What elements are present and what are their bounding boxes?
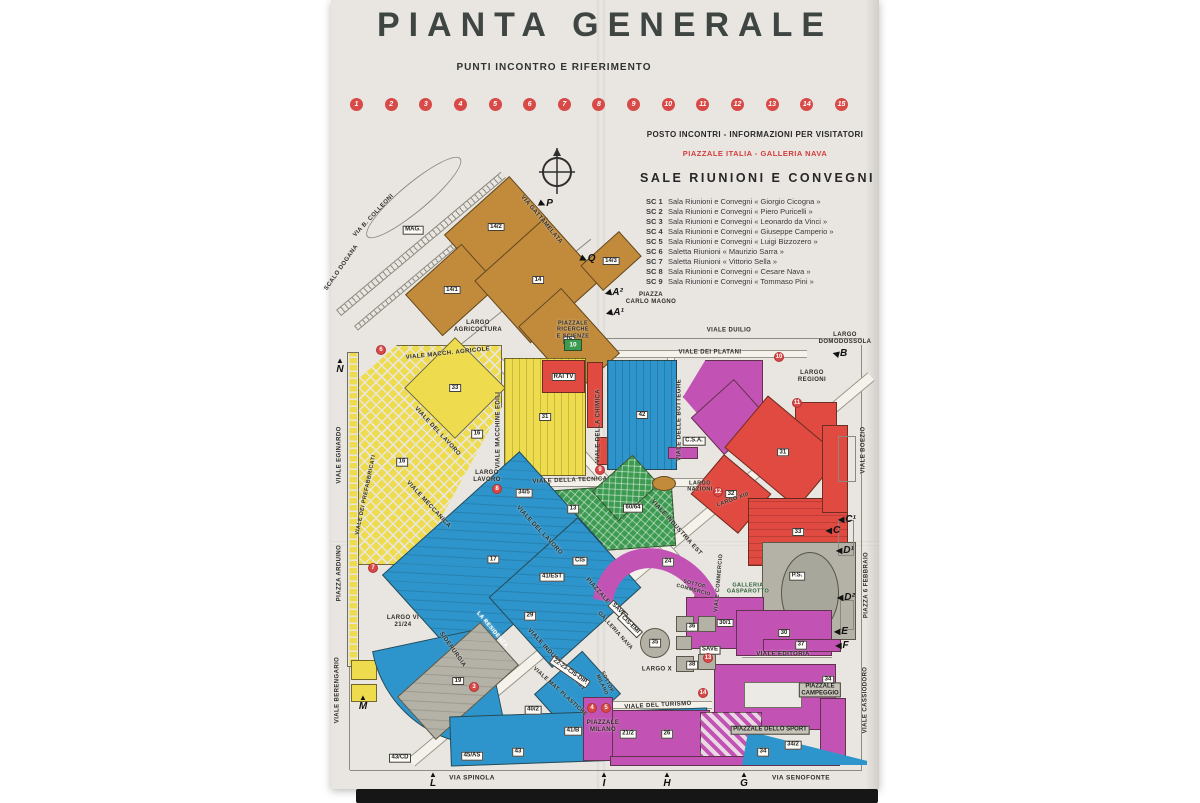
- pavilion-number: 19: [452, 677, 464, 685]
- map-label-37: 37: [795, 641, 807, 650]
- gate-arrow-icon: ◀: [836, 547, 842, 555]
- map-label-34/2: 34/2: [785, 741, 802, 750]
- gate-D¹: ◀D¹: [836, 546, 854, 556]
- map-label-c.s.a.: C.S.A.: [683, 437, 706, 446]
- street-label: PIAZZA 6 FEBBRAIO: [864, 552, 871, 618]
- street-label: VIA SENOFONTE: [772, 774, 830, 781]
- gate-letter: A¹: [613, 308, 624, 318]
- map-label-41/b: 41/B: [564, 727, 582, 736]
- gate-letter: P: [546, 199, 553, 209]
- gate-letter: I: [603, 779, 606, 789]
- pavilion-number: 14/2: [488, 223, 505, 231]
- map-label-cis: CIS: [572, 557, 587, 566]
- pavilion: [676, 636, 692, 650]
- meeting-point-dot-13: 13: [703, 653, 713, 663]
- pavilion-number: 14: [532, 276, 544, 284]
- meeting-point-dot-5: 5: [601, 703, 611, 713]
- gate-arrow-icon: ◀: [837, 594, 843, 602]
- gate-A¹: ◀A¹: [606, 308, 624, 318]
- map-label-16: 16: [396, 458, 408, 467]
- street-label: VIALE BOEZIO: [861, 426, 868, 473]
- gate-C¹: ◀C¹: [838, 515, 856, 525]
- street-label: VIA SPINOLA: [449, 774, 495, 781]
- street-label: VIALE DELLA CHIMICA: [596, 389, 603, 463]
- gate-letter: G: [740, 779, 748, 789]
- map-label-p.s.: P.S.: [789, 572, 805, 581]
- gate-arrow-icon: ◀: [604, 288, 612, 297]
- street-label: PIAZZALE RICERCHE E SCIENZE: [557, 321, 590, 340]
- map-label-mag.: MAG.: [403, 226, 424, 235]
- gate-L: ▲L: [429, 771, 437, 789]
- meeting-point-dot-6: 6: [376, 345, 386, 355]
- gate-A²: ◀A²: [605, 288, 623, 298]
- pavilion-number: 30: [778, 629, 790, 637]
- gate-B: ◀B: [833, 349, 847, 359]
- street-label: VIALE DEI PLATANI: [679, 350, 742, 357]
- meeting-point-dot-4: 4: [587, 703, 597, 713]
- pavilion-RAI TV: RAI TV: [542, 360, 585, 393]
- gate-arrow-icon: ◀: [826, 527, 832, 535]
- pavilion-number: 14/1: [444, 286, 461, 294]
- pavilion-number: RAI TV: [551, 373, 576, 381]
- map-label-43/cd: 43/CD: [389, 754, 411, 763]
- gate-arrow-icon: ◀: [832, 349, 840, 358]
- map-label-36: 36: [686, 623, 698, 632]
- gate-H: ▲H: [663, 771, 671, 789]
- compass-icon: [536, 146, 578, 194]
- map-label-13: 13: [567, 505, 579, 514]
- pavilion-number: 42: [636, 411, 648, 419]
- gate-letter: C: [833, 526, 840, 536]
- street-label: GALLERIA GASPAROTTO: [727, 583, 769, 596]
- gate-letter: D¹: [843, 546, 854, 556]
- gate-arrow-icon: ◀: [835, 642, 841, 650]
- street-label: PIAZZA CARLO MAGNO: [626, 292, 676, 306]
- map-label-16: 16: [471, 430, 483, 439]
- gate-P: ▶P: [539, 199, 553, 209]
- street-label: LARGO LAVORO: [473, 470, 501, 484]
- pavilion: [351, 660, 377, 680]
- gate-arrow-icon: ◀: [838, 516, 844, 524]
- pavilion-number: 17: [487, 556, 499, 564]
- pavilion: [652, 476, 676, 491]
- street-label: VIALE MACCHINE EDILI: [496, 392, 503, 469]
- gate-letter: B: [840, 349, 847, 359]
- pavilion-number: 30/1: [717, 619, 734, 627]
- gate-D²: ◀D²: [837, 593, 855, 603]
- gate-N: ▲N: [336, 357, 344, 375]
- map-label-piazzale-campeggio: PIAZZALE CAMPEGGIO: [799, 682, 841, 697]
- street-label: PIAZZA ARDUINO: [337, 545, 344, 602]
- street-label: VIALE EGINARDO: [337, 426, 344, 483]
- street-label: VIALE CASSIODORO: [863, 667, 870, 734]
- pavilion: [347, 352, 359, 667]
- gate-C: ◀C: [826, 526, 840, 536]
- meeting-point-dot-9: 9: [595, 465, 605, 475]
- street-label: VIALE DELLE BOTTEGHE: [677, 379, 684, 461]
- street-label: LARGO VI 21/24: [387, 615, 419, 629]
- gate-letter: H: [663, 779, 670, 789]
- gate-E: ◀E: [834, 627, 848, 637]
- gate-Q: ▶Q: [581, 254, 596, 264]
- map-label-38: 38: [686, 661, 698, 670]
- pavilion: [698, 616, 716, 632]
- gate-arrow-icon: ◀: [834, 628, 840, 636]
- street-label: LARGO DOMODOSSOLA: [819, 332, 872, 346]
- pavilion-number: 10: [568, 342, 578, 349]
- meeting-point-dot-3: 3: [469, 682, 479, 692]
- gate-arrow-icon: ◀: [605, 308, 613, 317]
- fairground-map: 14/214/11414/3153331RAI TV42273132331017…: [0, 0, 1200, 803]
- gate-letter: D²: [844, 593, 855, 603]
- pavilion-42: 42: [607, 360, 677, 470]
- gate-letter: N: [336, 365, 343, 375]
- pavilion-number: 31: [539, 413, 551, 421]
- gate-G: ▲G: [740, 771, 748, 789]
- map-label-35: 35: [649, 639, 661, 648]
- gate-M: ▲M: [359, 694, 367, 712]
- meeting-point-dot-11: 11: [792, 398, 802, 408]
- meeting-point-dot-8: 8: [492, 484, 502, 494]
- map-label-26: 26: [661, 730, 673, 739]
- map-label-60/64: 60/64: [623, 504, 643, 513]
- street-label: VIALE BERENGARIO: [335, 657, 342, 723]
- street-label: LARGO NAZIONI: [687, 481, 712, 494]
- street-label: LARGO X: [642, 667, 672, 674]
- pavilion-number: 14/3: [603, 257, 620, 265]
- pavilion: [838, 436, 856, 482]
- street-label: VIALE EDITORIA: [756, 652, 810, 659]
- map-label-45/as: 45/AS: [461, 752, 483, 761]
- pavilion: [820, 698, 846, 756]
- street-label: LARGO AGRICOLTURA: [454, 320, 502, 334]
- pavilion-10: 10: [564, 339, 582, 351]
- gate-letter: L: [430, 779, 436, 789]
- gate-F: ◀F: [835, 641, 848, 651]
- map-label-41/est: 41/EST: [539, 573, 564, 582]
- gate-letter: F: [843, 641, 849, 651]
- gate-letter: Q: [588, 254, 596, 264]
- meeting-point-dot-14: 14: [698, 688, 708, 698]
- street-label: SCALO DOGANA: [324, 244, 361, 292]
- map-label-34: 34: [757, 748, 769, 757]
- meeting-point-dot-12: 12: [713, 487, 723, 497]
- street-label: LARGO REGIONI: [798, 370, 826, 384]
- gate-letter: A²: [612, 288, 623, 298]
- street-label: VIALE DUILIO: [707, 328, 751, 335]
- gate-letter: M: [359, 702, 367, 712]
- pavilion: [744, 682, 802, 708]
- gate-letter: E: [841, 627, 848, 637]
- map-label-piazzale-dello-sport: PIAZZALE DELLO SPORT: [731, 726, 810, 735]
- pavilion-number: 33: [792, 528, 804, 536]
- map-label-21/2: 21/2: [620, 730, 637, 739]
- scan-edge-strip: [356, 789, 878, 803]
- map-label-34/5: 34/5: [516, 489, 533, 498]
- meeting-point-dot-7: 7: [368, 563, 378, 573]
- street-label: PIAZZALE MILANO: [587, 720, 620, 734]
- scanned-map-page: PIANTA GENERALE PUNTI INCONTRO E RIFERIM…: [0, 0, 1200, 803]
- map-label-43: 43: [512, 748, 524, 757]
- meeting-point-dot-10: 10: [774, 352, 784, 362]
- gate-I: ▲I: [600, 771, 608, 789]
- pavilion-number: 33: [449, 384, 461, 392]
- pavilion-number: 31: [777, 448, 789, 456]
- map-label-24: 24: [662, 558, 674, 567]
- gate-letter: C¹: [845, 515, 856, 525]
- map-label-29: 29: [524, 612, 536, 621]
- map-label-40/2: 40/2: [525, 706, 542, 715]
